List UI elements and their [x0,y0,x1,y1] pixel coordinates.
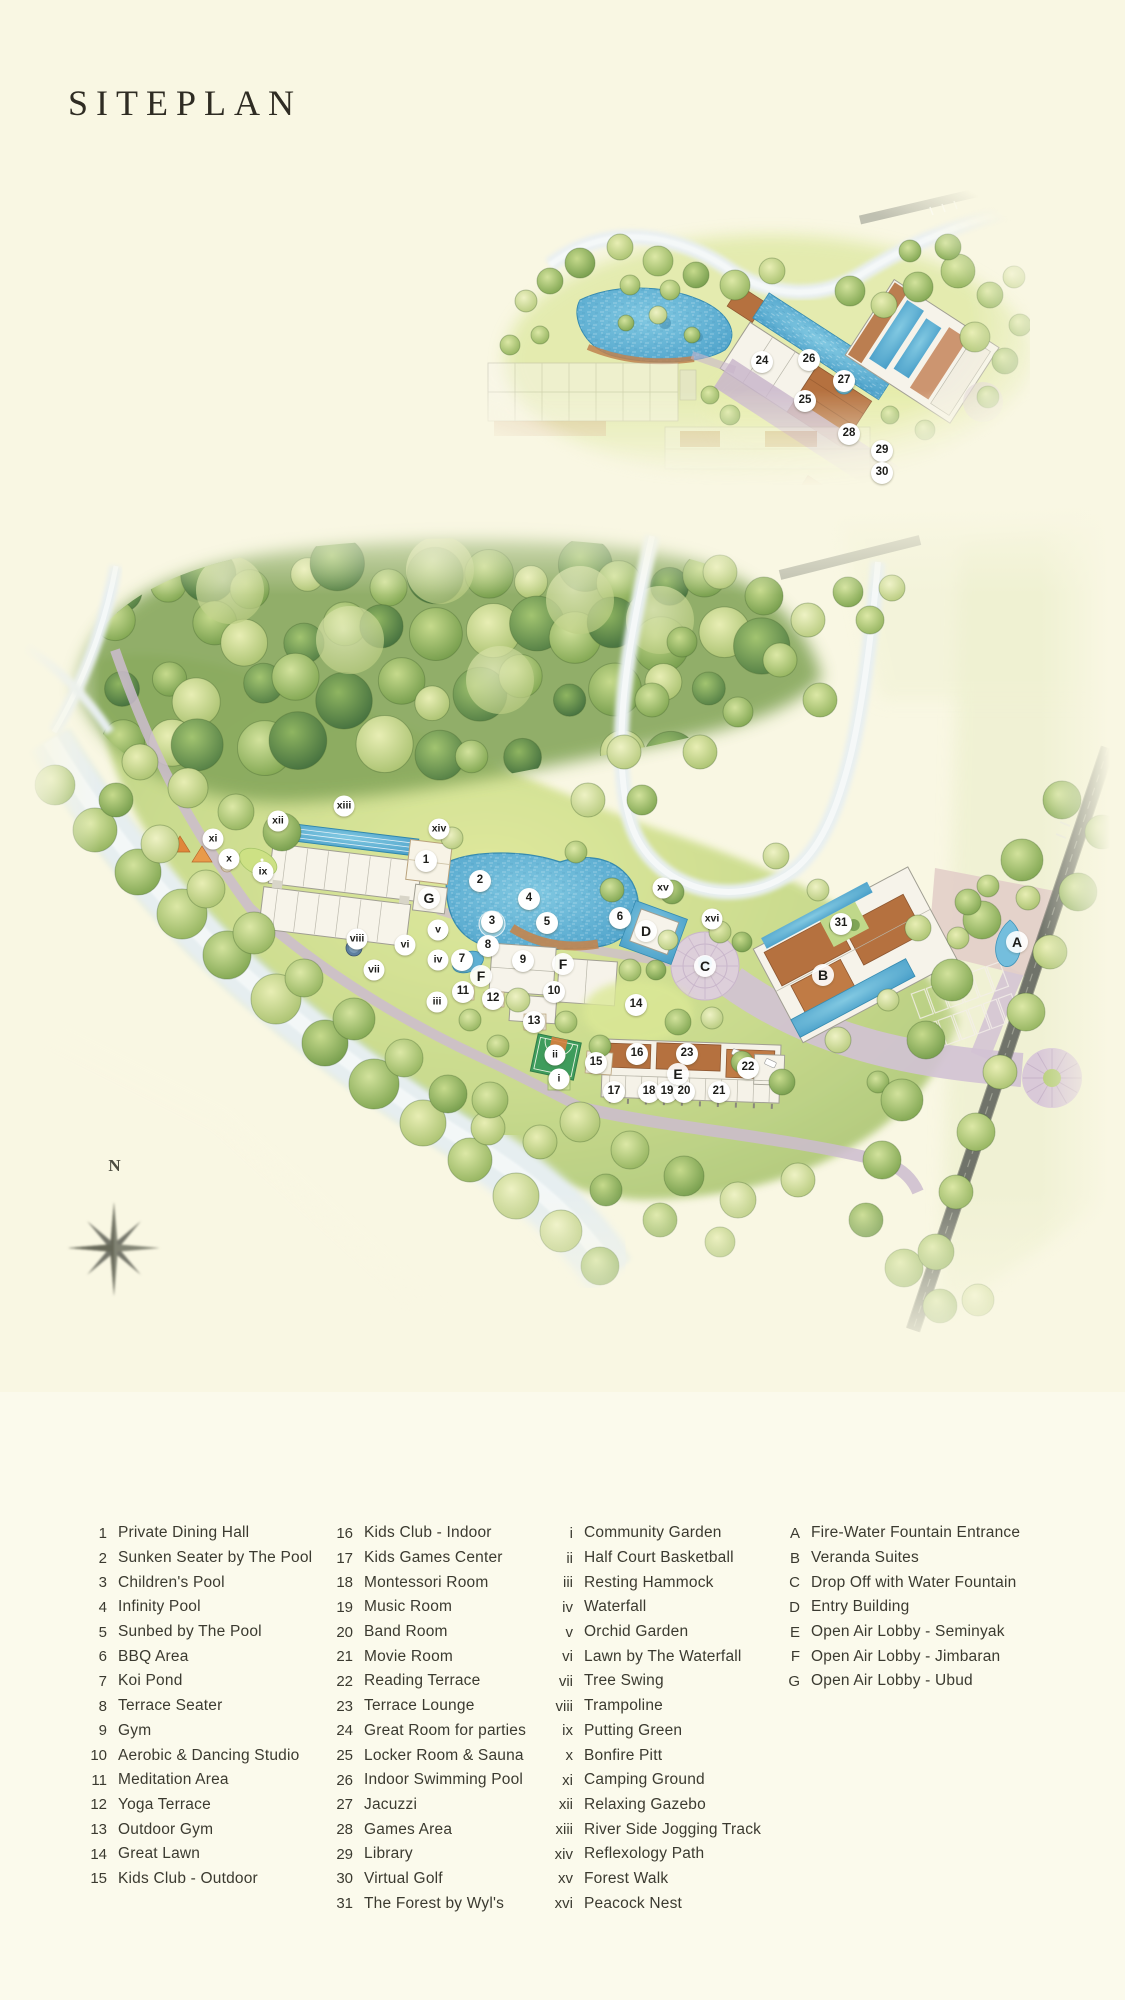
legend-item-number: iv [541,1599,573,1616]
legend-item: 28 Games Area [321,1817,526,1842]
legend-item-number: xv [541,1870,573,1887]
legend-column-2: 16 Kids Club - Indoor 17 Kids Games Cent… [321,1521,526,1916]
map-marker: 23 [676,1043,698,1065]
map-marker: 11 [452,981,474,1003]
north-label: N [108,1156,120,1176]
legend-item-number: 9 [75,1722,107,1739]
legend-item: 11 Meditation Area [75,1768,312,1793]
legend-item-label: Veranda Suites [811,1549,919,1567]
legend-item-label: Kids Club - Indoor [364,1524,492,1542]
legend-item-label: Great Room for parties [364,1722,526,1740]
map-marker: D [635,920,657,942]
legend-item-number: 2 [75,1550,107,1567]
legend-item-label: Drop Off with Water Fountain [811,1574,1016,1592]
map-marker: v [428,920,449,941]
legend-item-label: Reading Terrace [364,1672,480,1690]
legend-item: 15 Kids Club - Outdoor [75,1867,312,1892]
map-marker: 29 [871,440,893,462]
legend-item: C Drop Off with Water Fountain [772,1570,1020,1595]
legend-item: 16 Kids Club - Indoor [321,1521,526,1546]
legend-item: x Bonfire Pitt [541,1743,761,1768]
map-marker: i [549,1069,570,1090]
legend-item: F Open Air Lobby - Jimbaran [772,1644,1020,1669]
legend-item-label: Gym [118,1722,151,1740]
legend-item-label: Forest Walk [584,1870,668,1888]
legend-item-number: 31 [321,1895,353,1912]
map-marker: A [1006,931,1028,953]
map-marker: 31 [830,913,852,935]
map-marker: 7 [451,949,473,971]
map-marker: 3 [481,911,503,933]
legend-item: iii Resting Hammock [541,1570,761,1595]
map-marker: iv [428,950,449,971]
legend-item: 10 Aerobic & Dancing Studio [75,1743,312,1768]
legend-item: G Open Air Lobby - Ubud [772,1669,1020,1694]
legend-item-number: x [541,1747,573,1764]
legend-item-label: Peacock Nest [584,1895,682,1913]
legend-item-label: Kids Games Center [364,1549,503,1567]
map-marker: 28 [838,423,860,445]
legend-item-number: 11 [75,1772,107,1789]
legend-item-number: 4 [75,1599,107,1616]
legend-item-label: Orchid Garden [584,1623,688,1641]
legend-item-label: Koi Pond [118,1672,183,1690]
legend-item: v Orchid Garden [541,1620,761,1645]
legend-item-label: Montessori Room [364,1574,488,1592]
legend-item-number: 1 [75,1525,107,1542]
legend-item-label: Putting Green [584,1722,682,1740]
legend-item-label: Movie Room [364,1648,453,1666]
legend-item-number: 5 [75,1624,107,1641]
legend-item-number: 7 [75,1673,107,1690]
legend-item-label: Sunbed by The Pool [118,1623,262,1641]
legend-item: xv Forest Walk [541,1867,761,1892]
legend-item-number: A [772,1525,800,1542]
legend-column-4: A Fire-Water Fountain Entrance B Veranda… [772,1521,1020,1694]
map-marker: 17 [603,1081,625,1103]
legend-item: 8 Terrace Seater [75,1694,312,1719]
legend-item-label: Locker Room & Sauna [364,1747,524,1765]
legend-item: xvi Peacock Nest [541,1891,761,1916]
legend-item: 7 Koi Pond [75,1669,312,1694]
legend-item-number: B [772,1550,800,1567]
legend-item-number: i [541,1525,573,1542]
legend-item-label: Children's Pool [118,1574,225,1592]
legend-item: 22 Reading Terrace [321,1669,526,1694]
legend-item-label: Waterfall [584,1598,646,1616]
legend-item: 23 Terrace Lounge [321,1694,526,1719]
map-marker: 24 [751,351,773,373]
map-marker: 10 [543,981,565,1003]
legend-item-number: 29 [321,1846,353,1863]
legend-item: 31 The Forest by Wyl's [321,1891,526,1916]
legend-item-number: 13 [75,1821,107,1838]
legend-item: 27 Jacuzzi [321,1793,526,1818]
legend-item: 6 BBQ Area [75,1644,312,1669]
legend-item-number: 20 [321,1624,353,1641]
compass-rose: N [52,1150,177,1300]
legend-item: vii Tree Swing [541,1669,761,1694]
legend-item-label: Aerobic & Dancing Studio [118,1747,299,1765]
legend-item: 5 Sunbed by The Pool [75,1620,312,1645]
legend-item-number: 8 [75,1698,107,1715]
legend-item-number: xi [541,1772,573,1789]
legend-item-label: The Forest by Wyl's [364,1895,504,1913]
map-marker: G [418,887,440,909]
legend-item-label: Resting Hammock [584,1574,714,1592]
legend-item-number: 30 [321,1870,353,1887]
map-marker: xvi [702,909,723,930]
legend-item: vi Lawn by The Waterfall [541,1644,761,1669]
legend-item: 12 Yoga Terrace [75,1793,312,1818]
legend-item-number: 19 [321,1599,353,1616]
legend-item-label: Yoga Terrace [118,1796,211,1814]
legend-item: 14 Great Lawn [75,1842,312,1867]
main-map-art [20,500,1110,1360]
legend-item-label: Entry Building [811,1598,909,1616]
legend-item-label: Lawn by The Waterfall [584,1648,742,1666]
map-marker: 27 [833,370,855,392]
legend-item: viii Trampoline [541,1694,761,1719]
legend-item-number: ix [541,1722,573,1739]
legend-item: 9 Gym [75,1719,312,1744]
map-marker: 12 [482,988,504,1010]
map-marker: xii [268,811,289,832]
map-marker: xv [653,878,674,899]
legend-item-label: Bonfire Pitt [584,1747,662,1765]
legend-item-number: xiii [541,1821,573,1838]
upper-level-siteplan-map: 24262725282930 [430,165,1030,485]
map-marker: xiii [334,796,355,817]
main-siteplan-map: xixiixiiixivxixviiiviiviviviiiiiixvxvi12… [20,500,1110,1360]
legend-item-number: xvi [541,1895,573,1912]
legend-item-label: Sunken Seater by The Pool [118,1549,312,1567]
legend-item: 20 Band Room [321,1620,526,1645]
legend-item-number: F [772,1648,800,1665]
legend-column-3: i Community Garden ii Half Court Basketb… [541,1521,761,1916]
map-marker: F [470,965,492,987]
legend-item: 18 Montessori Room [321,1570,526,1595]
legend-item: xiv Reflexology Path [541,1842,761,1867]
legend-item-label: Reflexology Path [584,1845,704,1863]
legend-item-label: Tree Swing [584,1672,664,1690]
legend-item-label: BBQ Area [118,1648,189,1666]
legend-item: 2 Sunken Seater by The Pool [75,1546,312,1571]
map-marker: 8 [477,935,499,957]
map-marker: 14 [625,994,647,1016]
legend-item-label: Great Lawn [118,1845,200,1863]
legend-item: xi Camping Ground [541,1768,761,1793]
legend-item-number: E [772,1624,800,1641]
legend-item: 25 Locker Room & Sauna [321,1743,526,1768]
legend-item-number: viii [541,1698,573,1715]
map-marker: viii [347,929,368,950]
legend-item: 1 Private Dining Hall [75,1521,312,1546]
legend-item: iv Waterfall [541,1595,761,1620]
legend-item-label: Community Garden [584,1524,722,1542]
legend-item: 4 Infinity Pool [75,1595,312,1620]
legend-item: i Community Garden [541,1521,761,1546]
legend-item-label: Fire-Water Fountain Entrance [811,1524,1020,1542]
map-marker: F [552,953,574,975]
map-marker: iii [427,992,448,1013]
legend-item-label: Open Air Lobby - Ubud [811,1672,973,1690]
legend-item-number: 17 [321,1550,353,1567]
legend-item-label: Camping Ground [584,1771,705,1789]
map-marker: 2 [469,870,491,892]
legend-item: 24 Great Room for parties [321,1719,526,1744]
legend-item-label: Private Dining Hall [118,1524,249,1542]
legend-item-number: 24 [321,1722,353,1739]
legend-item-number: 6 [75,1648,107,1665]
page-title: SITEPLAN [68,82,302,124]
legend-item-label: Outdoor Gym [118,1821,213,1839]
legend-item-label: Band Room [364,1623,448,1641]
map-marker: 15 [585,1052,607,1074]
legend-item-number: D [772,1599,800,1616]
upper-level-map-art [430,165,1030,485]
map-marker: 30 [871,462,893,484]
legend-item: E Open Air Lobby - Seminyak [772,1620,1020,1645]
legend-item-number: 25 [321,1747,353,1764]
legend-item-label: Virtual Golf [364,1870,443,1888]
legend-item-label: Jacuzzi [364,1796,417,1814]
legend-column-1: 1 Private Dining Hall 2 Sunken Seater by… [75,1521,312,1891]
legend-item-label: Terrace Lounge [364,1697,475,1715]
legend-item-number: v [541,1624,573,1641]
map-marker: 9 [512,950,534,972]
legend-item-label: Terrace Seater [118,1697,222,1715]
map-marker: vi [395,935,416,956]
map-marker: 21 [708,1081,730,1103]
legend-item-number: 3 [75,1574,107,1591]
legend-item-number: 27 [321,1796,353,1813]
map-marker: 4 [518,888,540,910]
legend-item-label: Trampoline [584,1697,663,1715]
legend-item-number: vii [541,1673,573,1690]
legend-item-label: Indoor Swimming Pool [364,1771,523,1789]
legend-item: 17 Kids Games Center [321,1546,526,1571]
legend-item-label: Half Court Basketball [584,1549,734,1567]
legend-item: 29 Library [321,1842,526,1867]
legend-item-number: xii [541,1796,573,1813]
map-marker: 6 [609,907,631,929]
legend-item: 26 Indoor Swimming Pool [321,1768,526,1793]
siteplan-page: SITEPLAN [0,0,1125,2000]
legend-item: 13 Outdoor Gym [75,1817,312,1842]
map-marker: xi [203,829,224,850]
legend-item-number: 10 [75,1747,107,1764]
legend-item: 3 Children's Pool [75,1570,312,1595]
legend-item-number: 18 [321,1574,353,1591]
map-marker: 16 [626,1043,648,1065]
legend-item-label: Kids Club - Outdoor [118,1870,258,1888]
legend-item: 30 Virtual Golf [321,1867,526,1892]
legend-item-number: 14 [75,1846,107,1863]
map-marker: ix [253,862,274,883]
legend-item-label: Relaxing Gazebo [584,1796,706,1814]
map-marker: vii [364,960,385,981]
legend-item-label: Open Air Lobby - Jimbaran [811,1648,1000,1666]
map-marker: ii [545,1045,566,1066]
legend-item: xiii River Side Jogging Track [541,1817,761,1842]
legend-item-number: 15 [75,1870,107,1887]
legend-item: ii Half Court Basketball [541,1546,761,1571]
legend-item: ix Putting Green [541,1719,761,1744]
legend-item-number: ii [541,1550,573,1567]
legend-item-label: Games Area [364,1821,452,1839]
map-marker: B [812,964,834,986]
map-marker: xiv [429,819,450,840]
legend-item-number: vi [541,1648,573,1665]
legend-item-label: Meditation Area [118,1771,229,1789]
legend-item: D Entry Building [772,1595,1020,1620]
legend-item-number: 23 [321,1698,353,1715]
map-marker: 22 [737,1057,759,1079]
legend-item-number: 12 [75,1796,107,1813]
map-marker: x [219,849,240,870]
legend-item: 19 Music Room [321,1595,526,1620]
legend-item-label: Music Room [364,1598,452,1616]
legend-item-label: Infinity Pool [118,1598,201,1616]
map-marker: 1 [415,850,437,872]
map-marker: 25 [794,390,816,412]
legend-item: A Fire-Water Fountain Entrance [772,1521,1020,1546]
legend-item-label: Open Air Lobby - Seminyak [811,1623,1005,1641]
legend-item-number: C [772,1574,800,1591]
legend-item-label: River Side Jogging Track [584,1821,761,1839]
legend-item: B Veranda Suites [772,1546,1020,1571]
legend-item-number: iii [541,1574,573,1591]
legend-item-label: Library [364,1845,413,1863]
legend-item: xii Relaxing Gazebo [541,1793,761,1818]
map-marker: 26 [798,349,820,371]
legend-item-number: 16 [321,1525,353,1542]
map-marker: C [694,955,716,977]
map-marker: 13 [523,1011,545,1033]
legend-item-number: xiv [541,1846,573,1863]
legend-item-number: G [772,1673,800,1690]
legend-item: 21 Movie Room [321,1644,526,1669]
legend-item-number: 28 [321,1821,353,1838]
legend-item-number: 26 [321,1772,353,1789]
legend-item-number: 22 [321,1673,353,1690]
legend-item-number: 21 [321,1648,353,1665]
map-marker: 5 [536,912,558,934]
map-marker: E [667,1063,689,1085]
